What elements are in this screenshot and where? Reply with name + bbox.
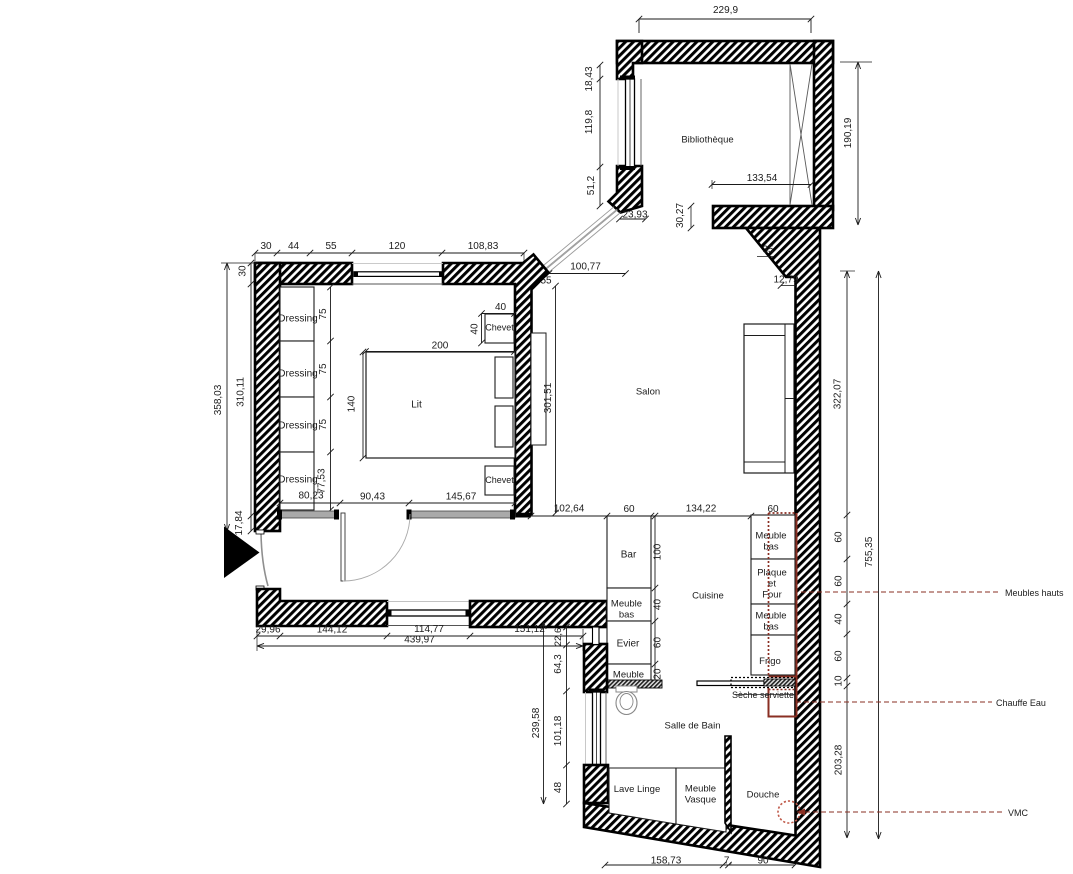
svg-text:Lit: Lit: [411, 400, 422, 411]
svg-text:239,58: 239,58: [531, 707, 542, 738]
svg-text:90: 90: [757, 856, 769, 867]
svg-text:Douche: Douche: [747, 790, 780, 801]
svg-text:120: 120: [389, 241, 406, 252]
svg-text:229,9: 229,9: [713, 5, 738, 16]
svg-text:48: 48: [553, 782, 564, 794]
svg-text:60: 60: [623, 504, 635, 515]
svg-text:Chauffe Eau: Chauffe Eau: [996, 698, 1046, 708]
svg-text:140: 140: [347, 395, 358, 412]
svg-text:100,77: 100,77: [570, 262, 601, 273]
svg-text:Sèche serviette: Sèche serviette: [732, 690, 794, 700]
svg-text:35: 35: [762, 245, 774, 256]
svg-text:Meuble: Meuble: [755, 531, 786, 542]
svg-text:22,6: 22,6: [553, 628, 564, 647]
svg-text:Dressing: Dressing: [278, 421, 317, 432]
svg-text:108,83: 108,83: [468, 241, 499, 252]
svg-text:51,2: 51,2: [586, 175, 597, 195]
svg-text:151,12: 151,12: [514, 624, 545, 635]
svg-text:bas: bas: [619, 610, 635, 621]
svg-text:439,97: 439,97: [404, 635, 435, 646]
svg-text:200: 200: [432, 341, 449, 352]
svg-text:Dressing: Dressing: [278, 369, 317, 380]
svg-text:40: 40: [834, 613, 845, 625]
svg-text:60: 60: [834, 531, 845, 543]
svg-text:60: 60: [834, 650, 845, 662]
svg-text:158,73: 158,73: [651, 856, 682, 867]
svg-text:30: 30: [260, 241, 272, 252]
svg-text:102,64: 102,64: [554, 504, 585, 515]
svg-text:7,: 7,: [724, 856, 732, 867]
svg-text:Lave Linge: Lave Linge: [614, 784, 660, 795]
svg-text:90,43: 90,43: [360, 492, 385, 503]
svg-text:Chevet: Chevet: [485, 475, 514, 485]
svg-text:114,77: 114,77: [414, 624, 444, 635]
svg-text:322,07: 322,07: [833, 378, 844, 409]
svg-text:358,03: 358,03: [213, 384, 224, 415]
svg-text:80,23: 80,23: [298, 491, 323, 502]
svg-text:Salon: Salon: [636, 387, 660, 398]
svg-text:Salle de Bain: Salle de Bain: [665, 721, 721, 732]
svg-text:75: 75: [318, 363, 329, 375]
svg-text:12,79: 12,79: [773, 275, 798, 286]
svg-text:30: 30: [238, 265, 249, 277]
svg-text:134,22: 134,22: [686, 504, 717, 515]
svg-text:Frigo: Frigo: [759, 656, 781, 667]
svg-text:Bibliothèque: Bibliothèque: [681, 135, 733, 146]
svg-text:64,3: 64,3: [553, 654, 564, 674]
svg-text:bas: bas: [763, 622, 779, 633]
svg-text:29,96: 29,96: [255, 625, 280, 636]
svg-text:60: 60: [653, 637, 664, 649]
svg-text:203,28: 203,28: [834, 744, 845, 775]
svg-text:23,93: 23,93: [622, 210, 647, 221]
svg-text:301,51: 301,51: [543, 382, 554, 413]
svg-text:310,11: 310,11: [236, 377, 247, 407]
svg-text:144,12: 144,12: [317, 625, 348, 636]
svg-text:bas: bas: [763, 542, 779, 553]
svg-text:17,84: 17,84: [234, 510, 245, 535]
svg-text:40: 40: [653, 599, 664, 611]
svg-text:18,43: 18,43: [584, 66, 595, 91]
svg-text:75: 75: [318, 308, 329, 320]
svg-text:VMC: VMC: [1008, 808, 1029, 818]
svg-text:Bar: Bar: [621, 550, 637, 561]
svg-text:60: 60: [834, 575, 845, 587]
svg-text:55: 55: [325, 241, 337, 252]
svg-text:44: 44: [288, 241, 300, 252]
svg-text:101,18: 101,18: [553, 715, 564, 746]
svg-text:30,27: 30,27: [675, 203, 686, 228]
svg-text:100: 100: [653, 543, 664, 560]
svg-text:75: 75: [318, 419, 329, 431]
svg-text:Evier: Evier: [617, 639, 640, 650]
svg-text:755,35: 755,35: [864, 536, 875, 567]
svg-text:Meuble: Meuble: [613, 670, 644, 681]
svg-text:10: 10: [834, 675, 845, 687]
svg-text:Four: Four: [762, 590, 782, 601]
svg-text:190,19: 190,19: [843, 117, 854, 148]
svg-text:Vasque: Vasque: [685, 795, 717, 806]
svg-text:119,8: 119,8: [584, 109, 595, 134]
svg-text:Plaque: Plaque: [757, 568, 787, 579]
svg-text:Meubles hauts: Meubles hauts: [1005, 588, 1064, 598]
svg-text:et: et: [768, 579, 776, 590]
svg-text:Dressing: Dressing: [278, 314, 317, 325]
svg-text:20: 20: [653, 668, 664, 680]
svg-text:Meuble: Meuble: [685, 784, 716, 795]
svg-text:Dressing: Dressing: [278, 475, 317, 486]
svg-text:145,67: 145,67: [446, 492, 477, 503]
svg-text:Cuisine: Cuisine: [692, 591, 724, 602]
svg-text:133,54: 133,54: [747, 173, 778, 184]
svg-text:40: 40: [495, 302, 507, 313]
svg-text:Chevet: Chevet: [485, 323, 514, 333]
svg-text:Meuble: Meuble: [611, 599, 642, 610]
svg-text:Meuble: Meuble: [755, 611, 786, 622]
svg-text:40: 40: [470, 323, 481, 335]
